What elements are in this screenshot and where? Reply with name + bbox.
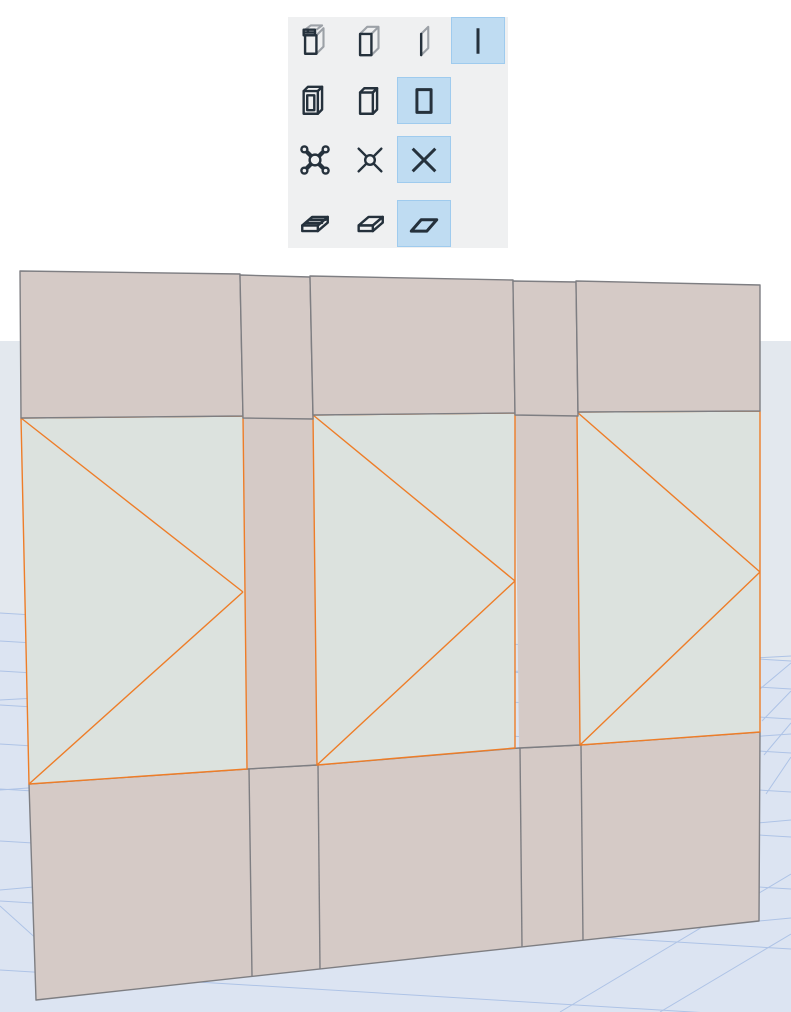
wall-pier-2[interactable] (515, 412, 580, 748)
wall-line-icon (461, 23, 495, 59)
wall-top-band-3[interactable] (576, 281, 760, 412)
palette-option-slab-composite[interactable] (288, 200, 342, 247)
application-canvas (0, 0, 791, 1012)
window-panel-3[interactable] (577, 411, 760, 745)
wall-top-pier-2[interactable] (513, 281, 578, 416)
wall-plane-icon (407, 23, 441, 59)
wall[interactable] (20, 271, 760, 1000)
object-x-icon (407, 142, 441, 178)
palette-option-object-simple[interactable] (343, 136, 397, 183)
palette-option-object-x[interactable] (397, 136, 451, 183)
model-display-palette (288, 17, 508, 248)
wall-top-band-2[interactable] (310, 276, 515, 415)
slab-plane-icon (407, 206, 441, 242)
wall-top-pier-1[interactable] (240, 275, 313, 419)
palette-option-wall-block[interactable] (343, 17, 397, 64)
object-detailed-icon (298, 142, 332, 178)
window-panel-1[interactable] (21, 416, 247, 784)
slab-block-icon (353, 206, 387, 242)
palette-option-wall-plane[interactable] (397, 17, 451, 64)
palette-option-slab-plane[interactable] (397, 200, 451, 247)
palette-option-opening-symbol[interactable] (397, 77, 451, 124)
palette-option-opening-block[interactable] (343, 77, 397, 124)
opening-symbol-icon (407, 83, 441, 119)
slab-composite-icon (298, 206, 332, 242)
palette-option-wall-composite[interactable] (288, 17, 342, 64)
wall-pier-1[interactable] (243, 415, 317, 769)
palette-option-opening-frame[interactable] (288, 77, 342, 124)
wall-block-icon (353, 23, 387, 59)
palette-option-wall-line[interactable] (451, 17, 505, 64)
palette-option-object-detailed[interactable] (288, 136, 342, 183)
window-panel-2[interactable] (313, 413, 515, 765)
opening-frame-icon (298, 83, 332, 119)
wall-top-band-1[interactable] (20, 271, 243, 418)
wall-composite-icon (298, 23, 332, 59)
opening-block-icon (353, 83, 387, 119)
object-simple-icon (353, 142, 387, 178)
palette-option-slab-block[interactable] (343, 200, 397, 247)
